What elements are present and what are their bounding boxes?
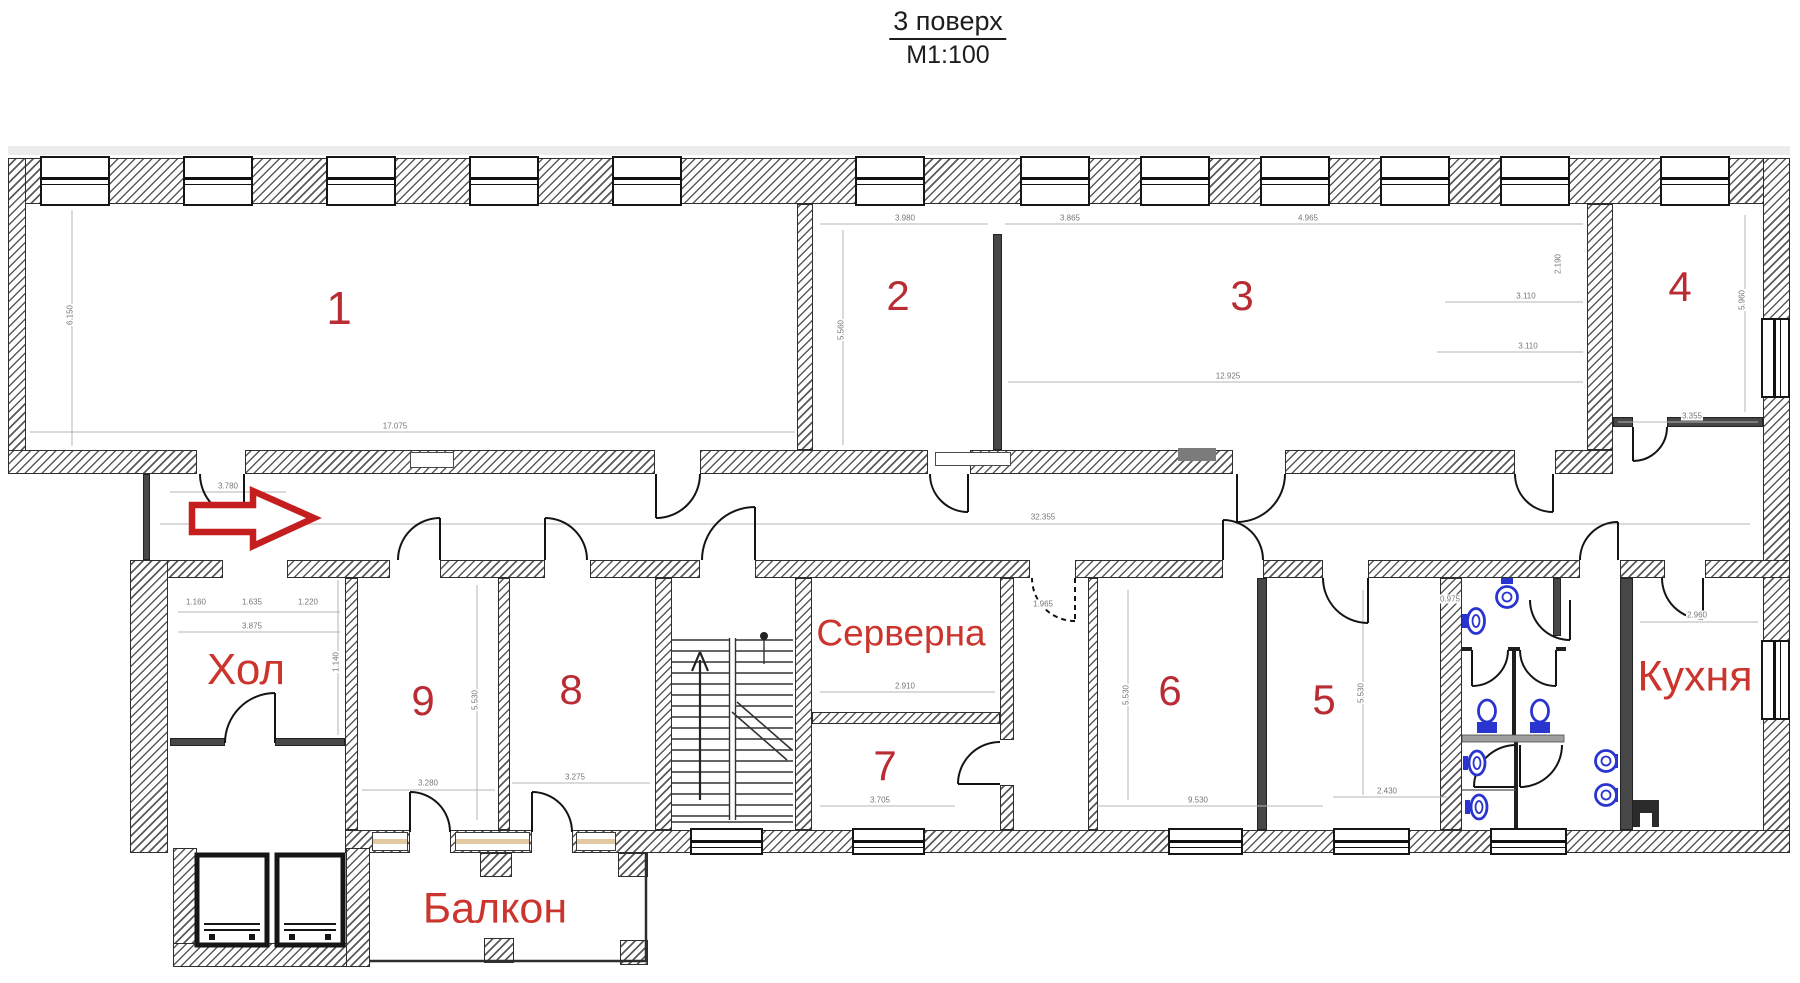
door-room4: [1633, 427, 1667, 461]
stair-rail-post: [760, 632, 768, 640]
room-label-7: 7: [873, 745, 896, 787]
door-room3-left: [1237, 474, 1285, 522]
dimension-label: 12.925: [1215, 372, 1241, 381]
door-stairs: [702, 507, 755, 560]
dimension-label: 2.960: [1686, 611, 1708, 620]
dimension-label: 17.075: [382, 422, 408, 431]
room-label-3: 3: [1230, 275, 1253, 317]
dimension-label: 5.530: [1357, 682, 1366, 704]
dimension-label: 5.530: [471, 689, 480, 711]
elevator-shaft-1: [197, 855, 267, 945]
door-stall-1: [1472, 650, 1508, 686]
room-label-9: 9: [411, 680, 434, 722]
door-bath-lower-a: [1520, 745, 1562, 787]
dimension-label: 0.975: [1439, 595, 1461, 604]
dimension-label: 3.875: [241, 622, 263, 631]
room-label-5: 5: [1312, 679, 1335, 721]
door-stall-2: [1520, 650, 1556, 686]
dimension-label: 1.220: [297, 598, 319, 607]
sink-top: [1497, 578, 1518, 608]
door-hall: [225, 693, 275, 743]
dimension-label: 1.635: [241, 598, 263, 607]
room-label-server: Серверна: [816, 615, 985, 652]
dimension-label: 3.980: [894, 214, 916, 223]
door-room7: [958, 742, 1000, 784]
staircase: [672, 632, 793, 822]
dimension-label: 6.150: [66, 304, 75, 326]
dimension-label: 1.160: [185, 598, 207, 607]
toilet-2: [1530, 700, 1550, 733]
dimension-label: 32.355: [1030, 513, 1056, 522]
dimension-label: 3.865: [1059, 214, 1081, 223]
dimension-label: 5.960: [1738, 289, 1747, 311]
door-room3-right: [1515, 474, 1553, 512]
dimension-label: 4.965: [1297, 214, 1319, 223]
door-room2: [930, 474, 968, 512]
dimension-label: 2.190: [1554, 253, 1563, 275]
door-room1-right: [656, 474, 700, 518]
urinal-1: [1463, 751, 1485, 775]
dimension-label: 3.780: [217, 482, 239, 491]
dimension-label: 2.430: [1376, 787, 1398, 796]
room-label-2: 2: [886, 275, 909, 317]
door-bath-inner: [1530, 600, 1570, 640]
dimension-label: 5.530: [1122, 684, 1131, 706]
dimension-label: 5.560: [837, 319, 846, 341]
dimension-label: 3.110: [1517, 342, 1538, 351]
door-room5: [1323, 578, 1368, 623]
stair-break-line: [732, 702, 792, 760]
dimension-label: 3.355: [1681, 412, 1703, 421]
door-room9-balcony: [410, 792, 450, 832]
elevators: [197, 855, 343, 945]
room-label-8: 8: [559, 669, 582, 711]
sink-right-1: [1596, 751, 1619, 772]
room-label-hall: Хол: [207, 648, 285, 692]
dimension-label: 3.705: [869, 796, 891, 805]
kitchen-shaft: [1633, 800, 1659, 827]
room-label-6: 6: [1158, 670, 1181, 712]
sink-right-2: [1596, 785, 1619, 806]
door-bathroom: [1580, 522, 1618, 560]
elevator-shaft-2: [277, 855, 343, 945]
dimension-label: 3.110: [1515, 292, 1536, 301]
dimension-label: 3.280: [417, 779, 439, 788]
door-room6: [1223, 520, 1263, 560]
stair-up-arrow: [692, 652, 708, 800]
dimension-label: 1.140: [332, 651, 341, 673]
urinal-2: [1465, 795, 1487, 819]
floor-plan: 3 поверх М1:100: [0, 0, 1800, 983]
room-label-4: 4: [1668, 266, 1691, 308]
room-label-1: 1: [326, 285, 352, 331]
door-room8-balcony: [532, 792, 572, 832]
room-label-balcony: Балкон: [423, 888, 567, 931]
dimension-label: 1.965: [1032, 600, 1054, 609]
dimension-label: 2.910: [894, 682, 916, 691]
toilet-1: [1477, 700, 1497, 733]
entrance-arrow-icon: [192, 491, 314, 546]
dimension-label: 9.530: [1187, 796, 1209, 805]
plan-graphics: [0, 0, 1800, 983]
room-label-kitchen: Кухня: [1637, 656, 1752, 699]
sink-left: [1462, 609, 1485, 634]
dimension-label: 3.275: [564, 773, 586, 782]
